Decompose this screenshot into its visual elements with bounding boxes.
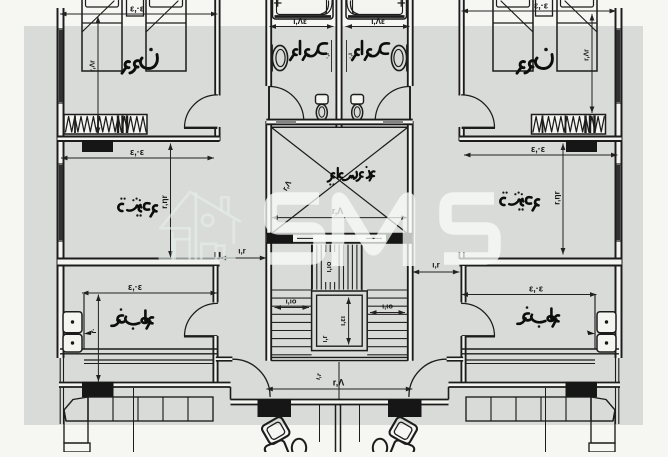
svg-text:ι,r: ι,r <box>322 335 329 342</box>
svg-text:ε,·ε: ε,·ε <box>534 1 549 11</box>
svg-text:r,ηr: r,ηr <box>159 194 169 208</box>
svg-text:ι,ιo: ι,ιo <box>286 297 297 306</box>
svg-text:ε,·ε: ε,·ε <box>130 147 145 157</box>
svg-text:r,Λr: r,Λr <box>584 49 591 61</box>
svg-text:r,Λr: r,Λr <box>90 60 97 72</box>
svg-text:ι,ιo: ι,ιo <box>324 261 333 272</box>
svg-text:r·: r· <box>91 328 98 333</box>
svg-text:ε,·ε: ε,·ε <box>531 144 546 154</box>
svg-text:ι,r: ι,r <box>238 247 246 256</box>
svg-text:ι,r: ι,r <box>432 261 440 270</box>
svg-text:r,ηr: r,ηr <box>552 190 562 204</box>
svg-text:ε,·ε: ε,·ε <box>529 284 544 294</box>
svg-text:ι,Λε: ι,Λε <box>293 17 307 26</box>
svg-text:ι,ιo: ι,ιo <box>382 302 393 311</box>
svg-text:ε,·ε: ε,·ε <box>128 282 143 292</box>
svg-text:ι,Λε: ι,Λε <box>371 17 385 26</box>
svg-text:r,Λ: r,Λ <box>333 378 345 388</box>
svg-text:ι,ει: ι,ει <box>338 316 347 326</box>
svg-text:ε,·ε: ε,·ε <box>130 4 145 14</box>
